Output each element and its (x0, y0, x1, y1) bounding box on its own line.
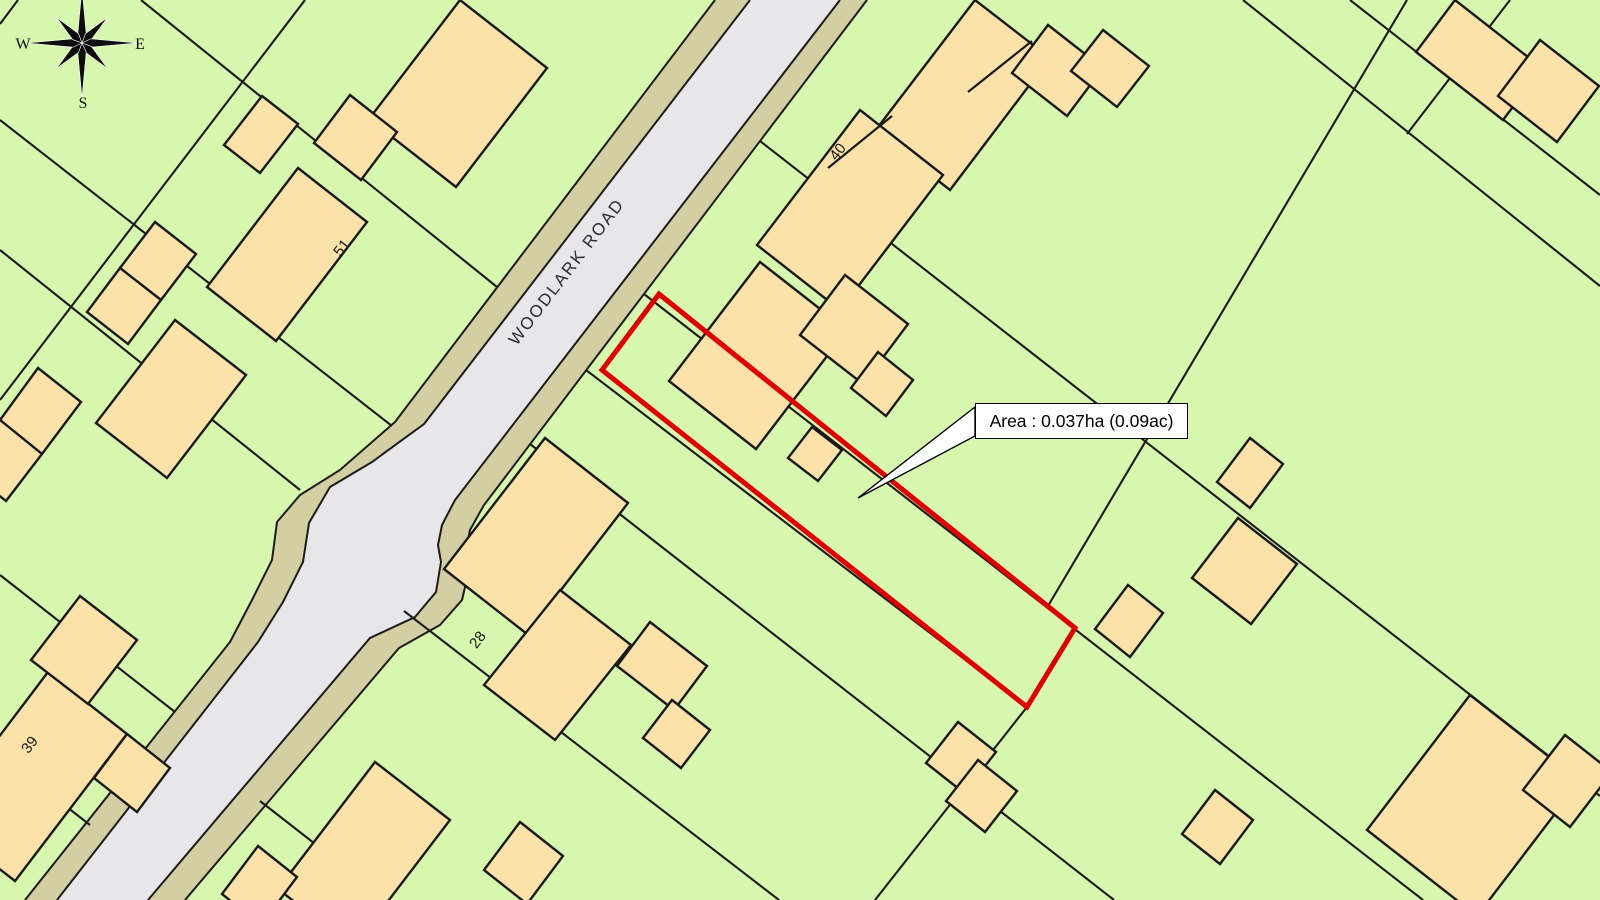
area-annotation-box: Area : 0.037ha (0.09ac) (975, 403, 1188, 439)
area-annotation-text: Area : 0.037ha (0.09ac) (990, 411, 1174, 432)
site-plan-drawing (0, 0, 1600, 900)
compass-direction-label: W (15, 36, 30, 54)
compass-direction-label: S (79, 95, 88, 113)
site-plan-map: Area : 0.037ha (0.09ac) WOODLARK ROAD 51… (0, 0, 1600, 900)
compass-direction-label: E (135, 36, 145, 54)
